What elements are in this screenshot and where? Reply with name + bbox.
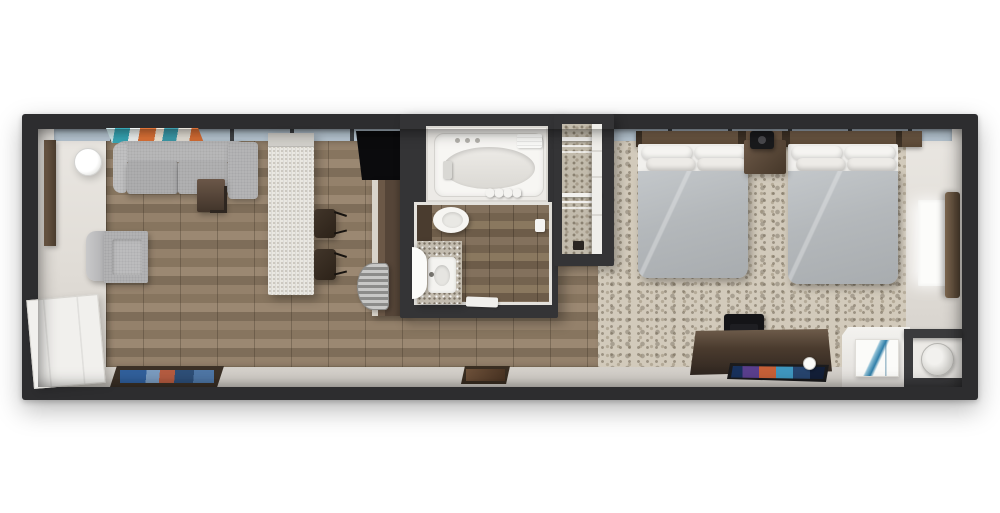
tub-faucet [443,161,452,179]
closet-side-panel [592,124,602,254]
framed-art [855,339,899,377]
armchair-seat [112,239,142,275]
sofa-chaise [228,142,258,199]
door-handle [535,219,545,232]
shower-curtain [485,187,521,202]
armchair-back [86,231,106,281]
side-table-leg [224,186,227,212]
cube-table-frame [904,378,962,387]
entry-mat-print [120,370,214,383]
side-table-top [197,179,225,212]
bar-stool-seat [314,249,336,280]
wall-tv [356,131,406,180]
folded-towel [517,134,542,148]
floor-lamp [74,148,102,176]
bedroom-window [918,200,948,286]
bed-duvet [788,171,898,284]
pillow [697,158,746,171]
entry-mat [110,366,224,387]
coffee-cup [803,357,816,370]
bathtub-basin [443,147,535,189]
curtain-panel [945,192,960,298]
kitchen-island [268,133,314,295]
sofa-seat-cushion [127,161,178,194]
bath-mat [466,296,498,307]
sofa-left-arm [113,143,127,193]
cube-table-stool [921,343,954,376]
toilet-ledge [417,205,432,243]
sink-faucet-icon [429,272,434,277]
closet-item [573,241,584,250]
hall-mat [461,366,510,384]
toilet [433,207,469,233]
bar-stool-seat [314,209,336,238]
window-band-living [54,129,400,141]
closet-cubby-shelf [592,150,602,152]
wall-mirror [44,140,56,246]
sink-basin [434,265,450,286]
shower-jet-icon [475,138,480,143]
kitchen-sink [357,263,389,310]
pillow [847,158,896,171]
table-lamp [750,131,774,149]
side-table-leg [210,210,227,213]
kitchen-island-cap [268,133,314,147]
bed-duvet [638,171,748,278]
closet-cubby-shelf [592,176,602,178]
closet-cubby-shelf [592,214,602,216]
shower-jet-icon [455,138,460,143]
toilet-seat [442,212,463,228]
shower-jet-icon [465,138,470,143]
table-lamp-top [758,136,766,144]
pillow [646,158,695,171]
round-mirror [412,247,427,299]
entry-door [26,294,105,389]
hall-mat-inner [466,369,505,381]
floor-plan-render [0,0,1000,513]
pillow [796,158,845,171]
